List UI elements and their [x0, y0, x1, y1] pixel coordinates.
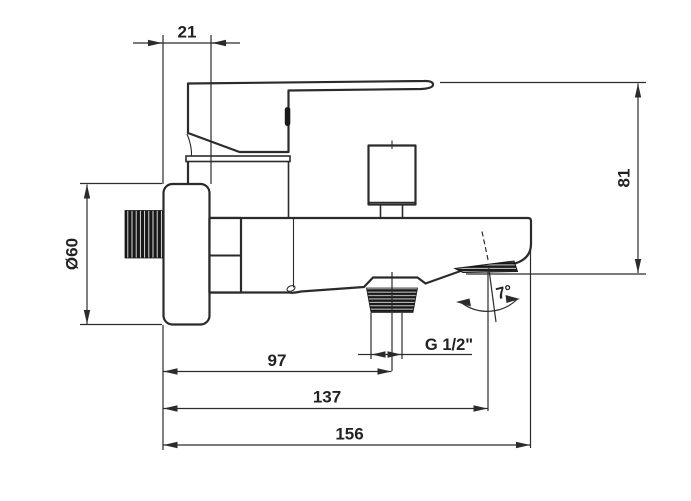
technical-drawing-page: 21 Ø60 81 97 137 156 G 1/2" 7° — [0, 0, 691, 501]
dimension-shower-outlet: 97 — [164, 351, 392, 372]
angle-arc-arrow-left — [456, 299, 471, 307]
dimension-height: 81 — [615, 84, 639, 274]
cartridge-cap-ring — [186, 156, 290, 162]
handle-and-lever — [188, 81, 433, 152]
dim-156-label: 156 — [335, 425, 363, 444]
dim-81-label: 81 — [615, 169, 634, 188]
dimension-thread-size: G 1/2" — [358, 336, 473, 355]
body-and-spout — [210, 218, 532, 293]
dimension-total-length: 156 — [164, 425, 531, 446]
dim-g12-label: G 1/2" — [425, 336, 473, 354]
faucet-outline — [125, 81, 531, 325]
bath-mixer-technical-drawing: 21 Ø60 81 97 137 156 G 1/2" 7° — [0, 0, 691, 501]
dimension-spout-outlet: 137 — [164, 388, 488, 409]
wall-thread-nipple — [125, 211, 164, 259]
handle-indicator-pin — [285, 107, 291, 126]
wall-flange — [164, 184, 210, 325]
diverter-knob — [369, 141, 416, 218]
dimension-flange-diameter: Ø60 — [63, 185, 88, 325]
dim-60-label: Ø60 — [63, 238, 82, 270]
thread-extension-lines — [371, 313, 402, 359]
handle-front-curve — [187, 134, 192, 156]
dimension-flange-depth: 21 — [133, 23, 240, 44]
diverter-knob-body — [369, 146, 416, 205]
dim-21-label: 21 — [178, 23, 197, 42]
angle-axis-line — [489, 268, 496, 322]
dim-97-label: 97 — [268, 351, 287, 370]
dim-137-label: 137 — [313, 388, 341, 407]
